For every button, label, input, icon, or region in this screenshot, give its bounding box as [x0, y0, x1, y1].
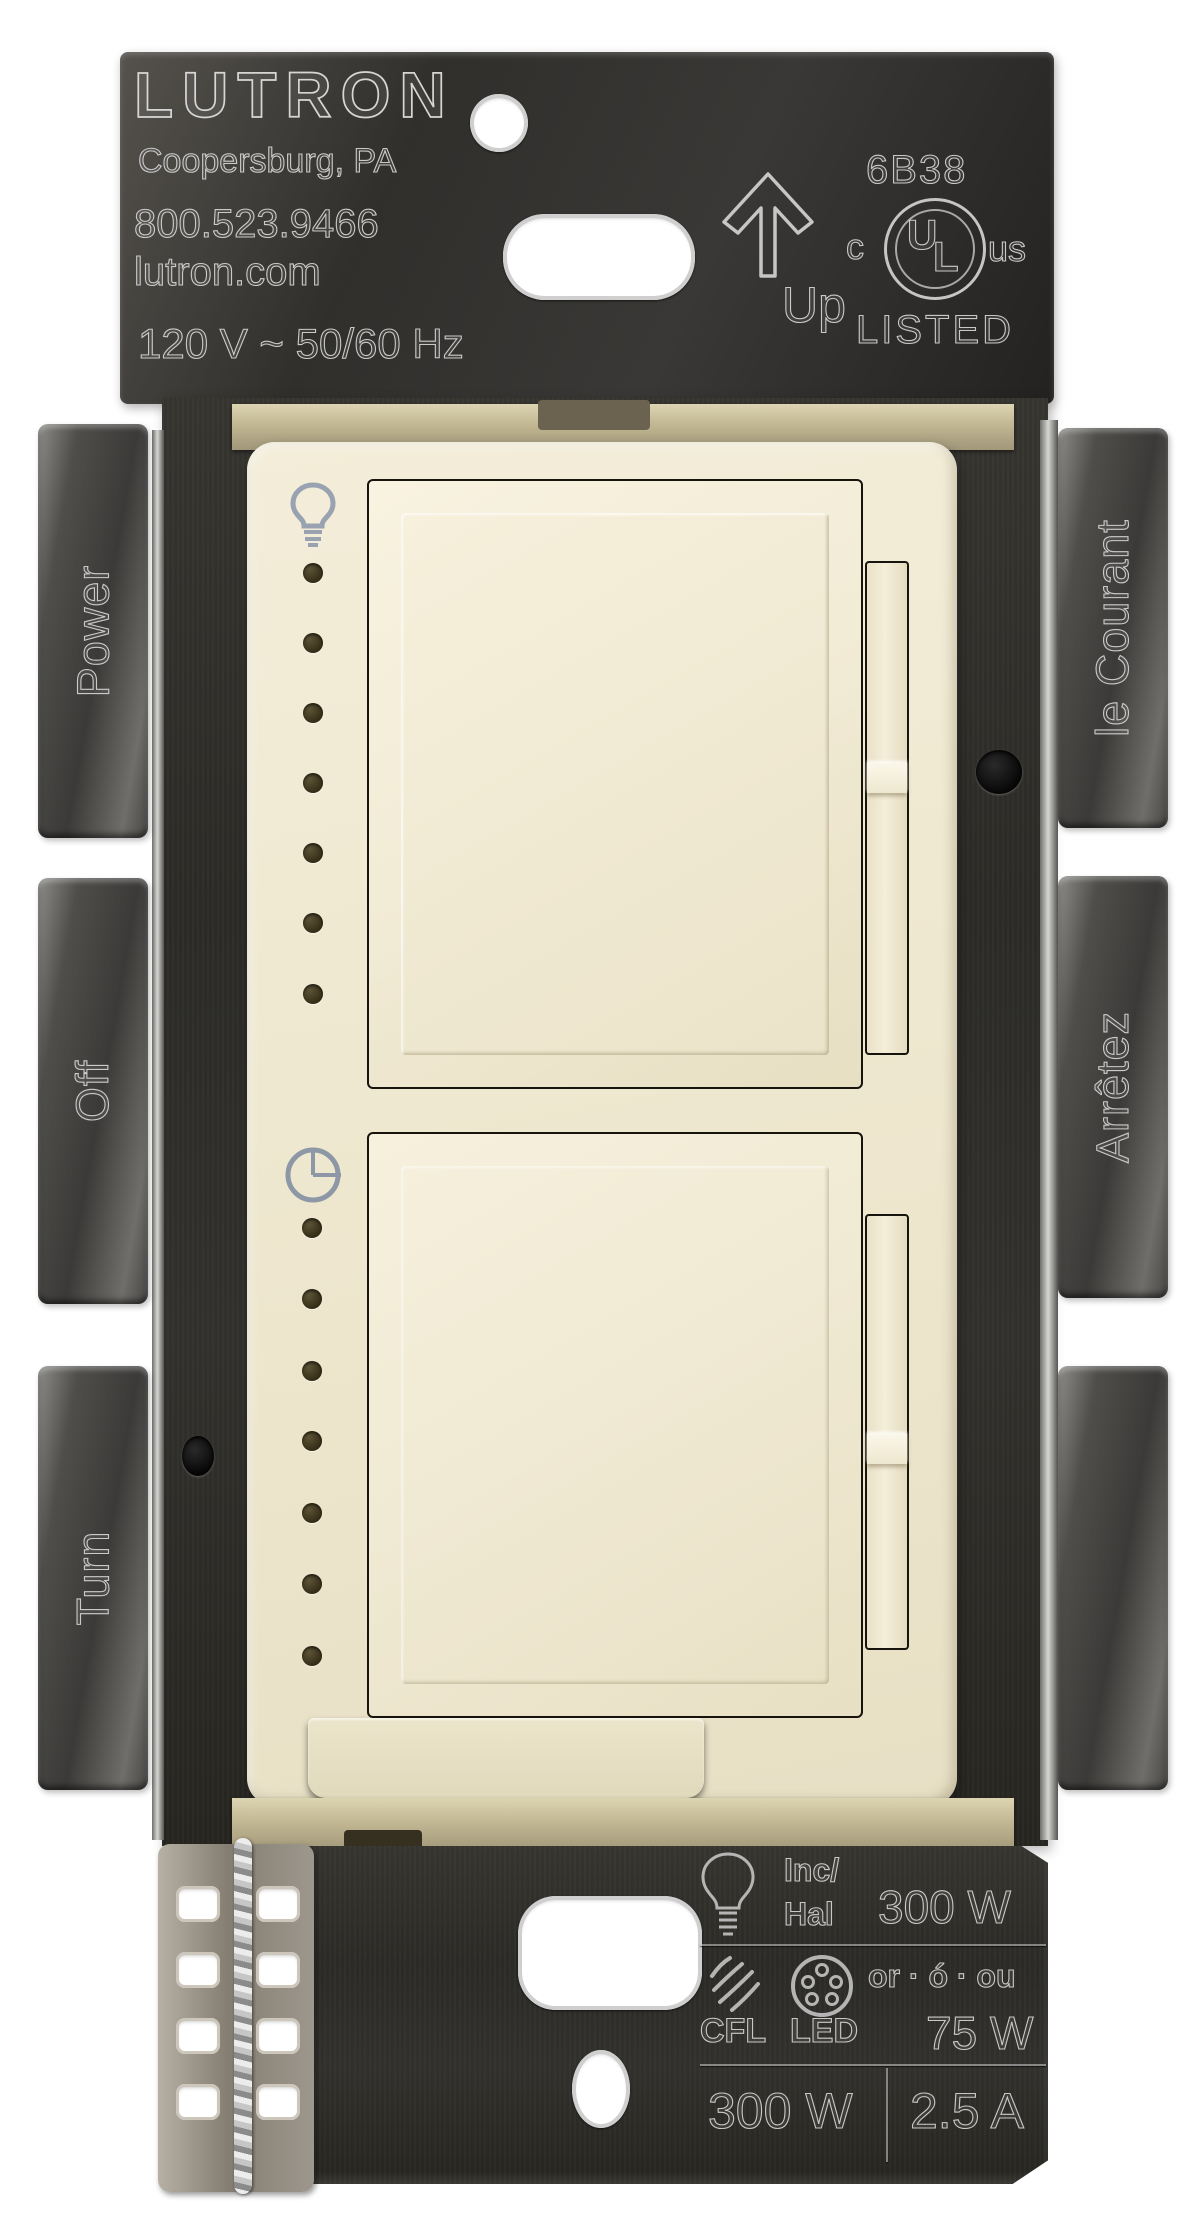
light-bulb-icon	[289, 482, 337, 548]
rocker-nub	[867, 763, 907, 793]
screw-hole-round	[470, 94, 528, 152]
ground-wire	[234, 1838, 252, 2194]
power-label: Power	[67, 565, 119, 698]
total-watts: 300 W	[708, 2082, 853, 2140]
off-label: Off	[67, 1060, 119, 1122]
incandescent-bulb-icon	[698, 1850, 758, 1940]
website-text: lutron.com	[134, 250, 321, 295]
side-tab-arretez: Arrêtez	[1058, 876, 1168, 1298]
hal-label: Hal	[784, 1896, 834, 1933]
side-tab-power: Power	[38, 424, 148, 838]
inc-hal-watts: 300 W	[878, 1880, 1011, 1934]
ul-prefix-c: c	[846, 226, 864, 268]
inc-label: Inc/	[784, 1852, 839, 1889]
strap-hole	[256, 2018, 300, 2054]
timer-level-dot	[302, 1503, 322, 1523]
dimmer-rocker[interactable]	[865, 561, 909, 1055]
timer-level-dot	[302, 1431, 322, 1451]
timer-level-dot	[302, 1289, 322, 1309]
dimmer-paddle-button[interactable]	[367, 479, 863, 1089]
bracket-top-tab	[538, 400, 650, 430]
timer-paddle-button[interactable]	[367, 1132, 863, 1718]
bracket-screw-hole-right	[976, 750, 1022, 794]
led-label: LED	[790, 2012, 858, 2051]
max-amps: 2.5 A	[910, 2082, 1024, 2140]
cfl-led-watts: 75 W	[926, 2006, 1033, 2060]
air-gap-switch-tray[interactable]	[308, 1718, 704, 1798]
cfl-label: CFL	[700, 2012, 766, 2051]
bracket-left-edge	[152, 430, 164, 1840]
side-tab-blank	[1058, 1366, 1168, 1790]
dimmer-level-dot	[303, 703, 323, 723]
timer-clock-icon	[283, 1144, 343, 1206]
ul-logo-icon: U L	[884, 198, 986, 300]
timer-level-dot	[302, 1218, 322, 1238]
ul-letter-l: L	[933, 233, 959, 281]
strap-hole	[176, 1952, 220, 1988]
bracket-right-edge	[1040, 420, 1058, 1840]
dimmer-level-dot	[303, 984, 323, 1004]
timer-level-dot	[302, 1361, 322, 1381]
address-text: Coopersburg, PA	[138, 142, 396, 181]
dimmer-level-dot	[303, 633, 323, 653]
strap-hole	[256, 1952, 300, 1988]
up-label: Up	[782, 276, 846, 334]
timer-level-dot	[302, 1646, 322, 1666]
dimmer-level-dot	[303, 843, 323, 863]
screw-hole-oval	[572, 2050, 630, 2128]
phone-text: 800.523.9466	[134, 202, 379, 247]
product-photo-lutron-maestro-dimmer-timer: LUTRON Coopersburg, PA 800.523.9466 lutr…	[0, 0, 1200, 2234]
strap-hole	[176, 2084, 220, 2120]
timer-level-dot	[302, 1574, 322, 1594]
ratings-divider-vertical	[886, 2068, 888, 2162]
rocker-nub	[867, 1434, 907, 1464]
dimmer-paddle-face	[401, 513, 829, 1055]
arretez-label: Arrêtez	[1087, 1011, 1139, 1163]
timer-rocker[interactable]	[865, 1214, 909, 1650]
dimmer-level-dot	[303, 913, 323, 933]
ul-suffix-us: us	[988, 228, 1026, 270]
le-courant-label: le Courant	[1087, 519, 1139, 737]
electrical-rating-text: 120 V ~ 50/60 Hz	[138, 320, 464, 368]
or-text: or · ó · ou	[868, 1958, 1016, 1995]
ratings-divider-1	[700, 1944, 1046, 1946]
side-tab-turn: Turn	[38, 1366, 148, 1790]
strap-hole	[256, 1886, 300, 1922]
brand-logo: LUTRON	[134, 58, 455, 132]
strap-hole	[176, 1886, 220, 1922]
bracket-screw-hole-left	[182, 1436, 214, 1476]
ratings-divider-2	[700, 2064, 1046, 2066]
timer-paddle-face	[401, 1166, 829, 1684]
dimmer-level-dot	[303, 563, 323, 583]
turn-label: Turn	[67, 1531, 119, 1626]
wallbox-opening	[518, 1896, 702, 2010]
side-tab-le-courant: le Courant	[1058, 428, 1168, 828]
listed-text: LISTED	[856, 308, 1014, 353]
strap-hole	[176, 2018, 220, 2054]
dimmer-level-dot	[303, 773, 323, 793]
side-tab-off: Off	[38, 878, 148, 1304]
led-module-icon	[788, 1952, 856, 2020]
model-code-text: 6B38	[866, 148, 967, 193]
up-arrow-icon	[712, 162, 824, 280]
wiring-access-hole	[503, 214, 695, 300]
cfl-squiggle-icon	[706, 1950, 764, 2014]
strap-hole	[256, 2084, 300, 2120]
